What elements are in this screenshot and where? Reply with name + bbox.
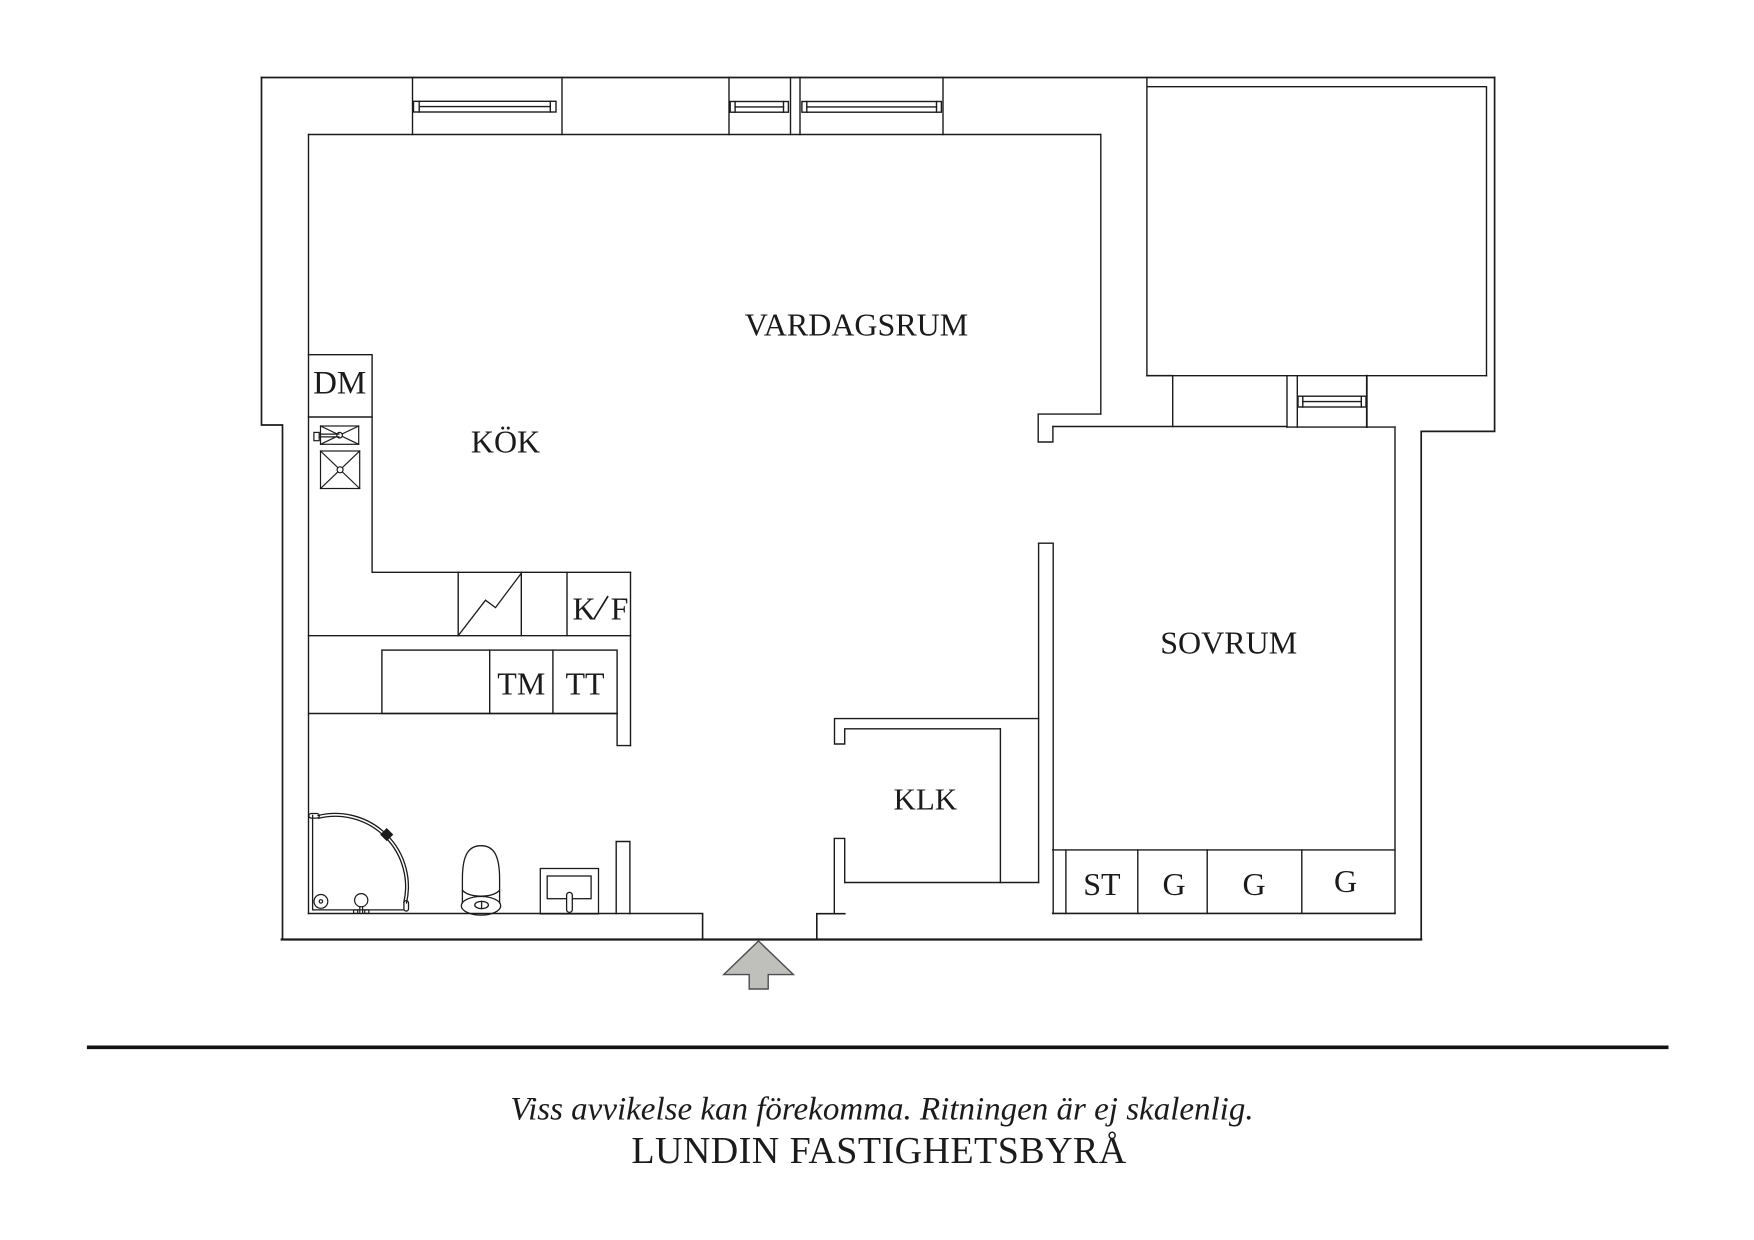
svg-text:VARDAGSRUM: VARDAGSRUM xyxy=(745,306,968,342)
svg-text:K: K xyxy=(572,591,595,627)
svg-text:LUNDIN FASTIGHETSBYRÅ: LUNDIN FASTIGHETSBYRÅ xyxy=(631,1130,1126,1172)
svg-text:TM: TM xyxy=(497,665,545,701)
svg-text:G: G xyxy=(1334,863,1357,899)
svg-text:KLK: KLK xyxy=(893,782,957,817)
svg-text:SOVRUM: SOVRUM xyxy=(1160,624,1297,660)
svg-text:TT: TT xyxy=(565,665,605,701)
svg-text:F: F xyxy=(611,591,629,627)
svg-text:ST: ST xyxy=(1083,866,1121,902)
svg-text:G: G xyxy=(1162,866,1185,902)
svg-text:KÖK: KÖK xyxy=(471,423,540,459)
svg-text:Viss avvikelse kan förekomma.: Viss avvikelse kan förekomma. Ritningen … xyxy=(510,1092,1253,1128)
svg-text:G: G xyxy=(1242,866,1265,902)
svg-text:DM: DM xyxy=(313,366,366,402)
